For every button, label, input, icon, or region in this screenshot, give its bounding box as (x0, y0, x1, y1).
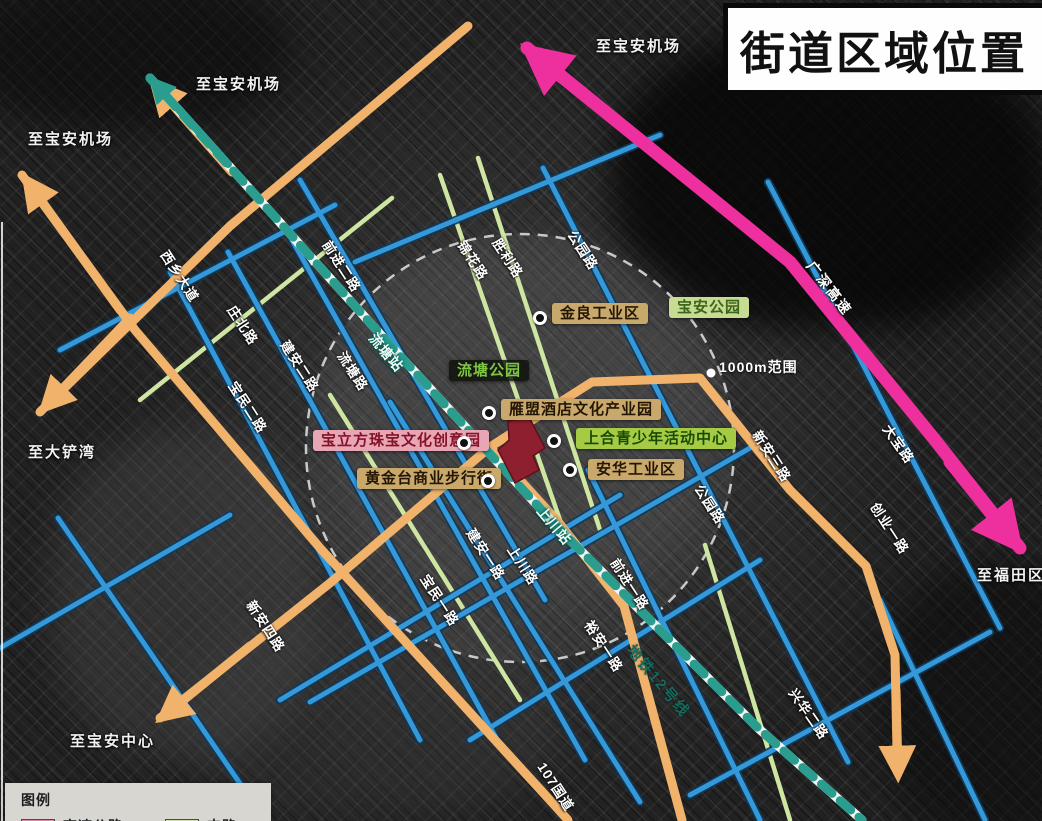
poi-marker-dot (457, 436, 471, 450)
poi-label: 流塘公园 (449, 360, 529, 381)
legend-row: 高速公路 支路 (21, 816, 271, 821)
poi-marker-dot (481, 474, 495, 488)
poi-label: 雁盟酒店文化产业园 (501, 399, 661, 420)
direction-label: 至宝安机场 (196, 76, 281, 93)
arrow-to-baoan-center (164, 646, 250, 716)
poi-label: 上合青少年活动中心 (576, 428, 736, 449)
poi-marker-dot (563, 463, 577, 477)
legend-label-expressway: 高速公路 (63, 816, 123, 821)
page-title: 街道区域位置 (740, 17, 1028, 82)
poi-marker-dot (482, 406, 496, 420)
legend-label-branch-road: 支路 (207, 816, 237, 821)
street-area-location-map: 至宝安机场至宝安机场至宝安机场至大铲湾至宝安中心至福田区西乡大道前进二路庄北路建… (0, 0, 1042, 821)
direction-label: 至宝安中心 (70, 733, 155, 750)
poi-label: 安华工业区 (588, 459, 684, 480)
highway-arrow-north (532, 53, 640, 140)
arrow-to-airport-west (28, 182, 120, 310)
legend-title: 图例 (21, 790, 271, 810)
poi-marker-dot (547, 434, 561, 448)
legend: 图例 高速公路 支路 (5, 783, 271, 821)
poi-label: 黄金台商业步行街 (357, 468, 501, 489)
range-label: 1000m范围 (719, 359, 798, 375)
poi-label: 金良工业区 (552, 303, 648, 324)
direction-label: 至宝安机场 (28, 131, 113, 148)
arrow-south (896, 690, 898, 772)
title-box: 街道区域位置 (723, 3, 1042, 95)
range-anchor-dot (707, 369, 716, 378)
direction-label: 至大铲湾 (28, 444, 96, 461)
direction-label: 至福田区 (977, 567, 1042, 584)
direction-label: 至宝安机场 (596, 38, 681, 55)
poi-label: 宝安公园 (669, 297, 749, 318)
poi-marker-dot (533, 311, 547, 325)
frame-edge-line (1, 222, 3, 821)
highway-arrow-south (950, 462, 1014, 542)
metro-arrow (154, 82, 228, 164)
